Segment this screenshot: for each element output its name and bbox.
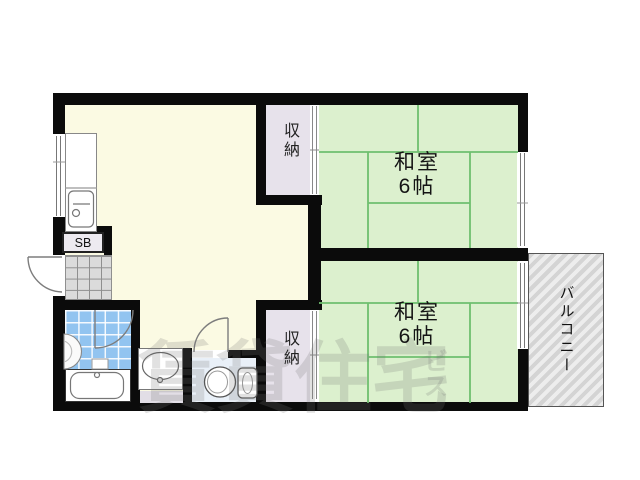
outer-wall-top bbox=[53, 93, 528, 105]
closet-top-label: 収納 bbox=[277, 122, 301, 160]
washbasin-toilet-wall bbox=[183, 348, 192, 403]
washbasin-counter bbox=[138, 348, 183, 390]
wall-between-tatami-rooms bbox=[308, 248, 528, 261]
bathroom-wall-top bbox=[53, 300, 140, 310]
kitchen-window-gap bbox=[53, 134, 65, 217]
room-label-bottom: 和室 6帖 bbox=[340, 301, 494, 349]
washbasin-cabinet bbox=[140, 391, 183, 403]
room-bottom-name: 和室 bbox=[340, 301, 494, 325]
shoe-box-label: SB bbox=[64, 234, 102, 251]
outer-wall-bottom bbox=[53, 402, 528, 411]
outer-wall-right-lower bbox=[518, 349, 528, 411]
wall-dk-tatami bbox=[308, 203, 321, 310]
entrance-door-gap bbox=[53, 255, 65, 296]
shoebox-wall-right bbox=[104, 226, 112, 255]
balcony-label: バルコニー bbox=[556, 285, 577, 375]
room-top-size: 6帖 bbox=[340, 175, 494, 199]
closet-top-sliding-door bbox=[310, 105, 319, 195]
toilet-door-threshold bbox=[192, 350, 228, 358]
closet-bottom-wall-top bbox=[256, 300, 322, 310]
toilet-floor bbox=[192, 358, 262, 403]
window-top-room-gap bbox=[517, 152, 528, 247]
bathtub bbox=[65, 369, 131, 402]
window-bottom-room-gap bbox=[517, 262, 528, 349]
shoe-box: SB bbox=[62, 232, 104, 253]
genkan-tiles bbox=[64, 255, 112, 300]
room-bottom-size: 6帖 bbox=[340, 325, 494, 349]
bathroom-tiles bbox=[65, 310, 131, 370]
kitchen-counter bbox=[65, 133, 97, 232]
closet-bottom-sliding-door bbox=[310, 310, 319, 400]
balcony: バルコニー bbox=[528, 253, 604, 407]
outer-wall-right-upper bbox=[518, 93, 528, 153]
closet-top-wall-left bbox=[256, 105, 266, 205]
floorplan: バルコニー SB bbox=[0, 0, 640, 480]
room-top-name: 和室 bbox=[340, 151, 494, 175]
room-label-top: 和室 6帖 bbox=[340, 151, 494, 199]
closet-top-wall-bottom bbox=[256, 195, 322, 205]
toilet-wall-top bbox=[228, 350, 262, 358]
closet-bottom-label: 収納 bbox=[277, 330, 301, 368]
